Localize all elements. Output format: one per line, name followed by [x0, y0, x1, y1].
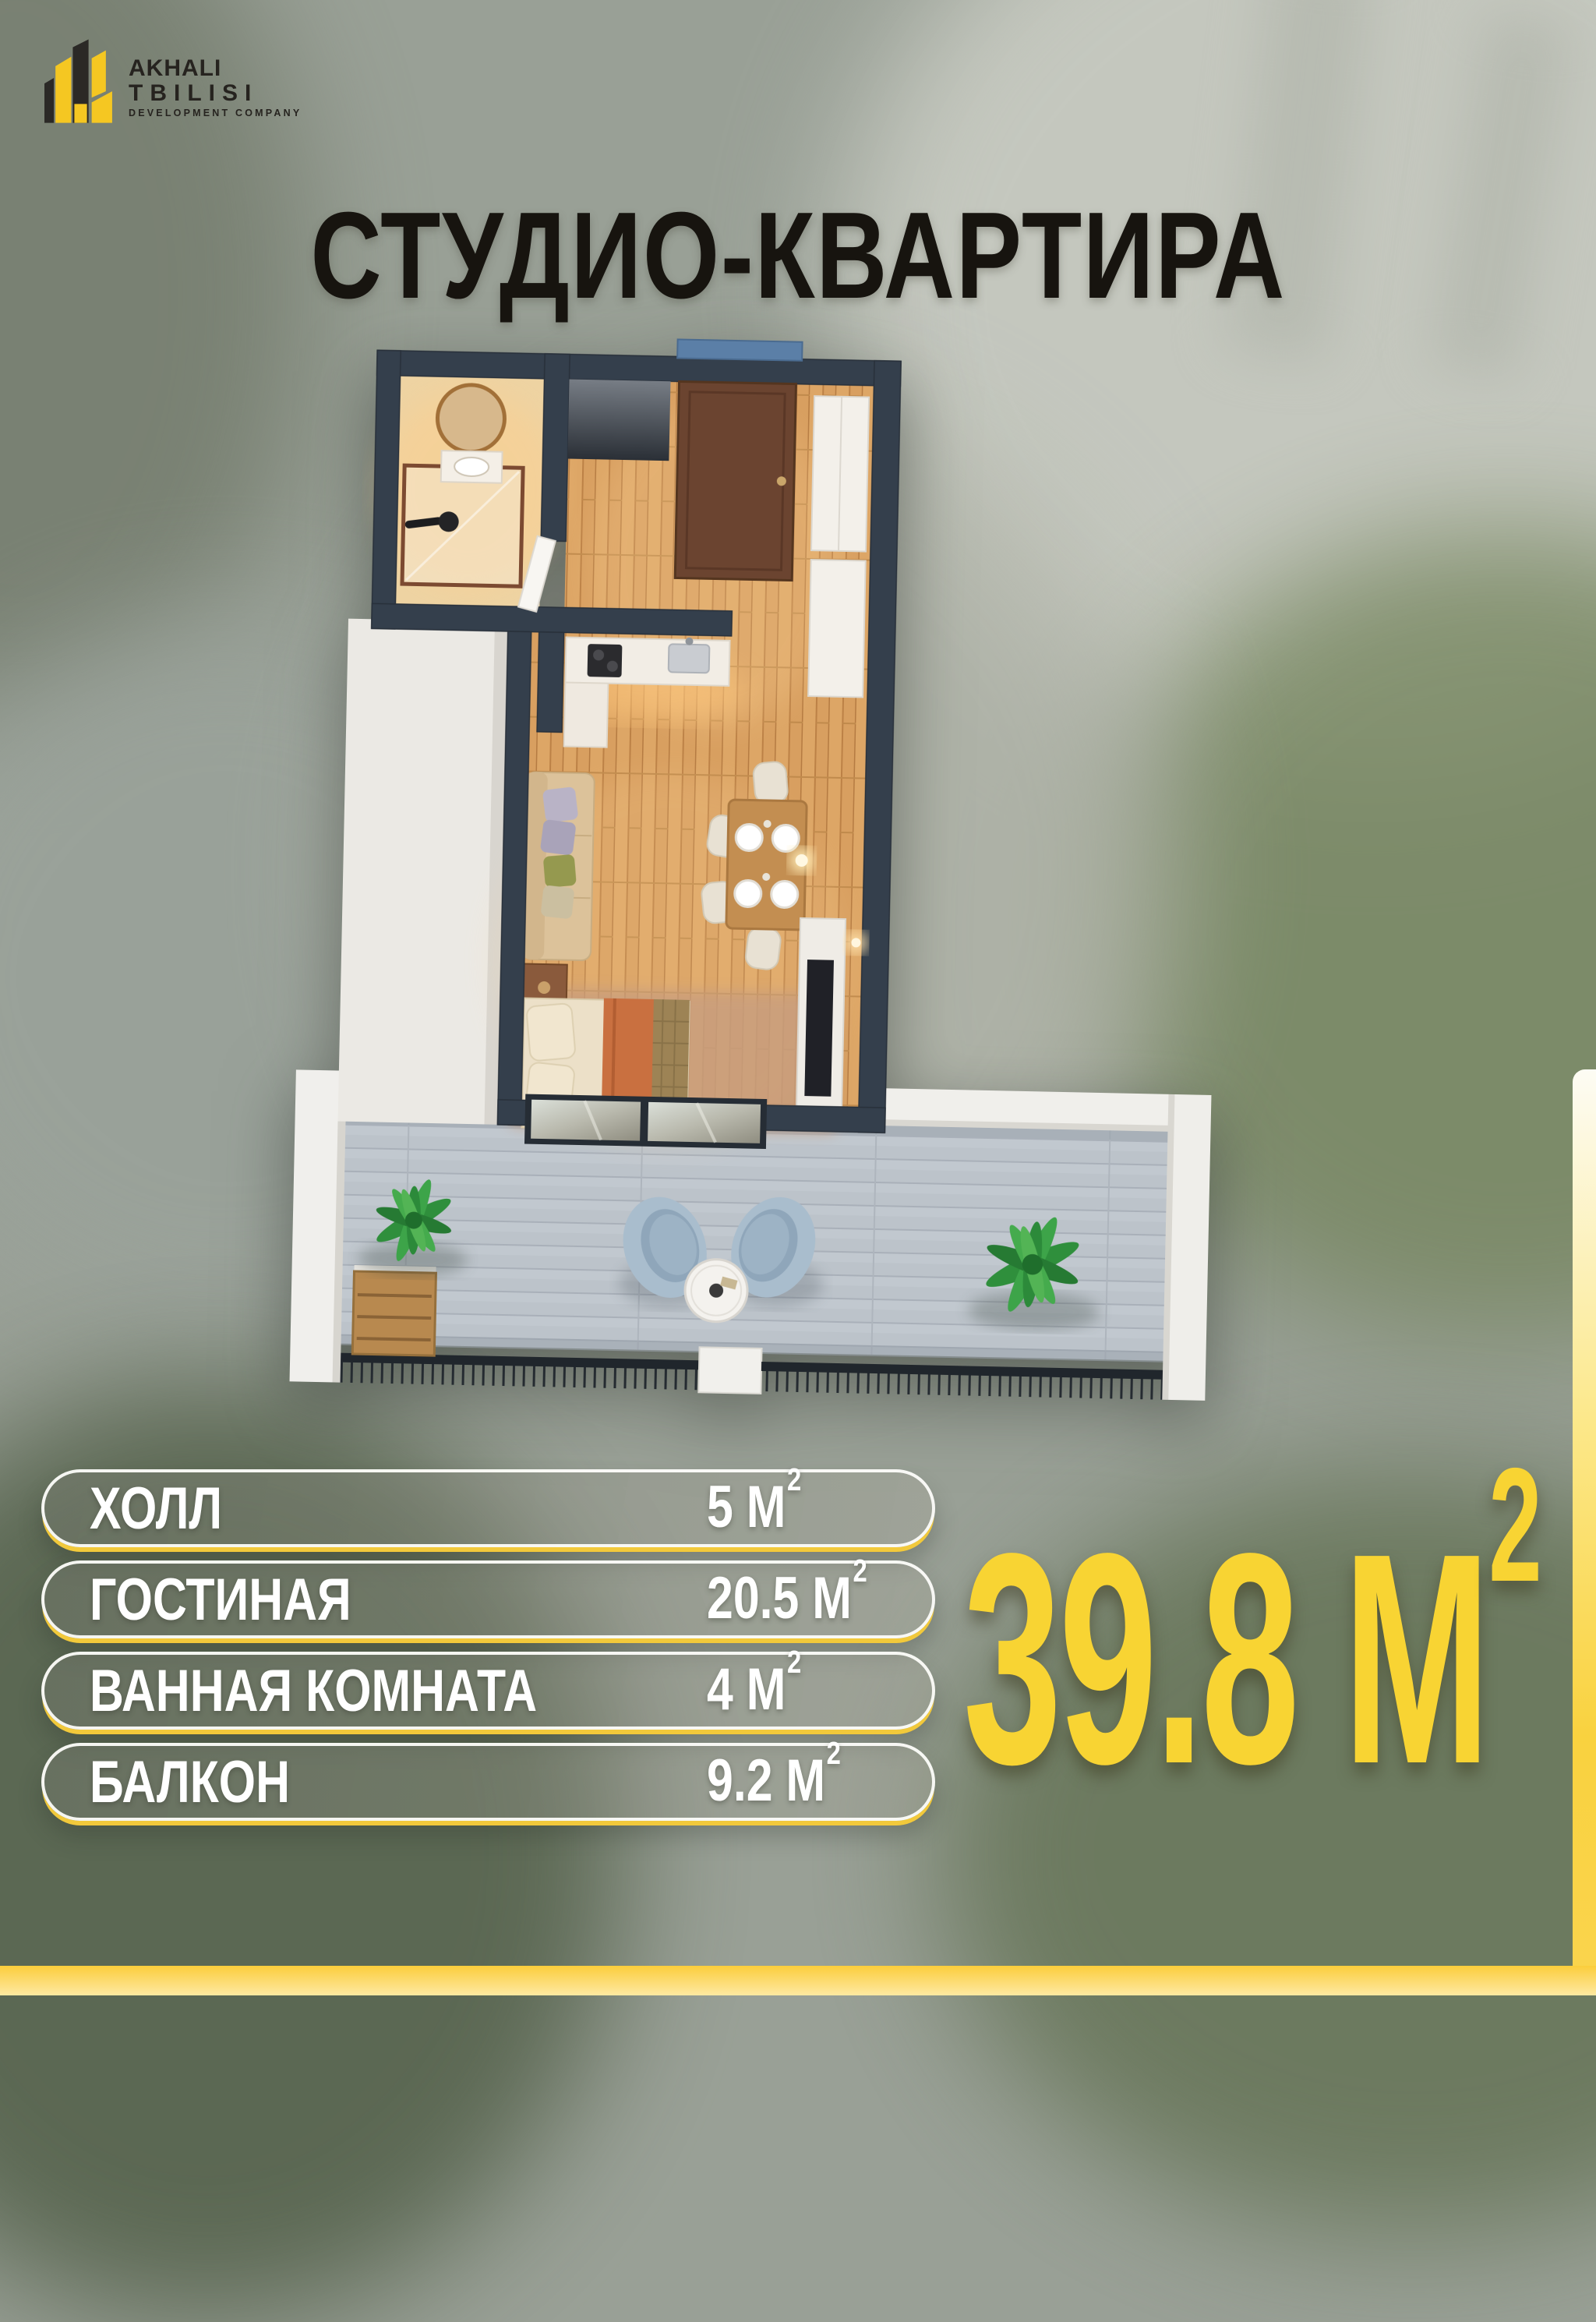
door-lintel	[677, 339, 802, 360]
page-title-text: СТУДИО-КВАРТИРА	[310, 186, 1285, 327]
balcony-coffee-table	[684, 1259, 748, 1323]
bottom-accent-bar	[0, 1966, 1596, 1995]
room-row-living: ГОСТИНАЯ 20.5 М2	[41, 1560, 935, 1638]
logo-text: AKHALI TBILISI DEVELOPMENT COMPANY	[129, 56, 302, 118]
room-name: БАЛКОН	[90, 1748, 290, 1816]
room-name: ГОСТИНАЯ	[90, 1566, 351, 1634]
logo-buildings-icon	[43, 34, 118, 123]
tv-screen	[804, 960, 834, 1097]
page-title: СТУДИО-КВАРТИРА	[0, 186, 1596, 327]
cooktop	[588, 644, 623, 677]
room-name: ВАННАЯ КОМНАТА	[90, 1657, 537, 1725]
room-area-list: ХОЛЛ 5 М2 ГОСТИНАЯ 20.5 М2 ВАННАЯ КОМНАТ…	[41, 1469, 935, 1834]
room-name: ХОЛЛ	[90, 1475, 222, 1543]
room-row-bathroom: ВАННАЯ КОМНАТА 4 М2	[41, 1652, 935, 1730]
round-mirror	[437, 384, 506, 453]
planter-box	[352, 1265, 436, 1355]
tv-console	[796, 918, 846, 1131]
room-row-balcony: БАЛКОН 9.2 М2	[41, 1743, 935, 1821]
brand-logo: AKHALI TBILISI DEVELOPMENT COMPANY	[43, 34, 302, 123]
room-area: 9.2 М2	[707, 1747, 841, 1815]
sliding-glass-door	[524, 1094, 767, 1149]
total-area-sup: 2	[1488, 1435, 1539, 1616]
side-accent-bar	[1573, 1069, 1596, 1995]
total-area-value: 39.8 М	[963, 1490, 1488, 1826]
room-area: 20.5 М2	[707, 1564, 867, 1632]
outer-wall-white-band	[338, 619, 508, 1125]
brand-name-line1: AKHALI	[129, 56, 302, 81]
room-area: 5 М2	[707, 1473, 801, 1541]
sofa	[522, 772, 595, 960]
entry-niche	[567, 380, 670, 461]
floorplan-3d-render	[284, 329, 1250, 1440]
kitchen-sink	[669, 644, 710, 673]
room-row-hall: ХОЛЛ 5 М2	[41, 1469, 935, 1547]
brand-tagline: DEVELOPMENT COMPANY	[129, 108, 302, 118]
total-area: 39.8 М2	[963, 1508, 1539, 1808]
brand-name-line2: TBILISI	[129, 81, 302, 106]
room-area: 4 М2	[707, 1656, 801, 1723]
